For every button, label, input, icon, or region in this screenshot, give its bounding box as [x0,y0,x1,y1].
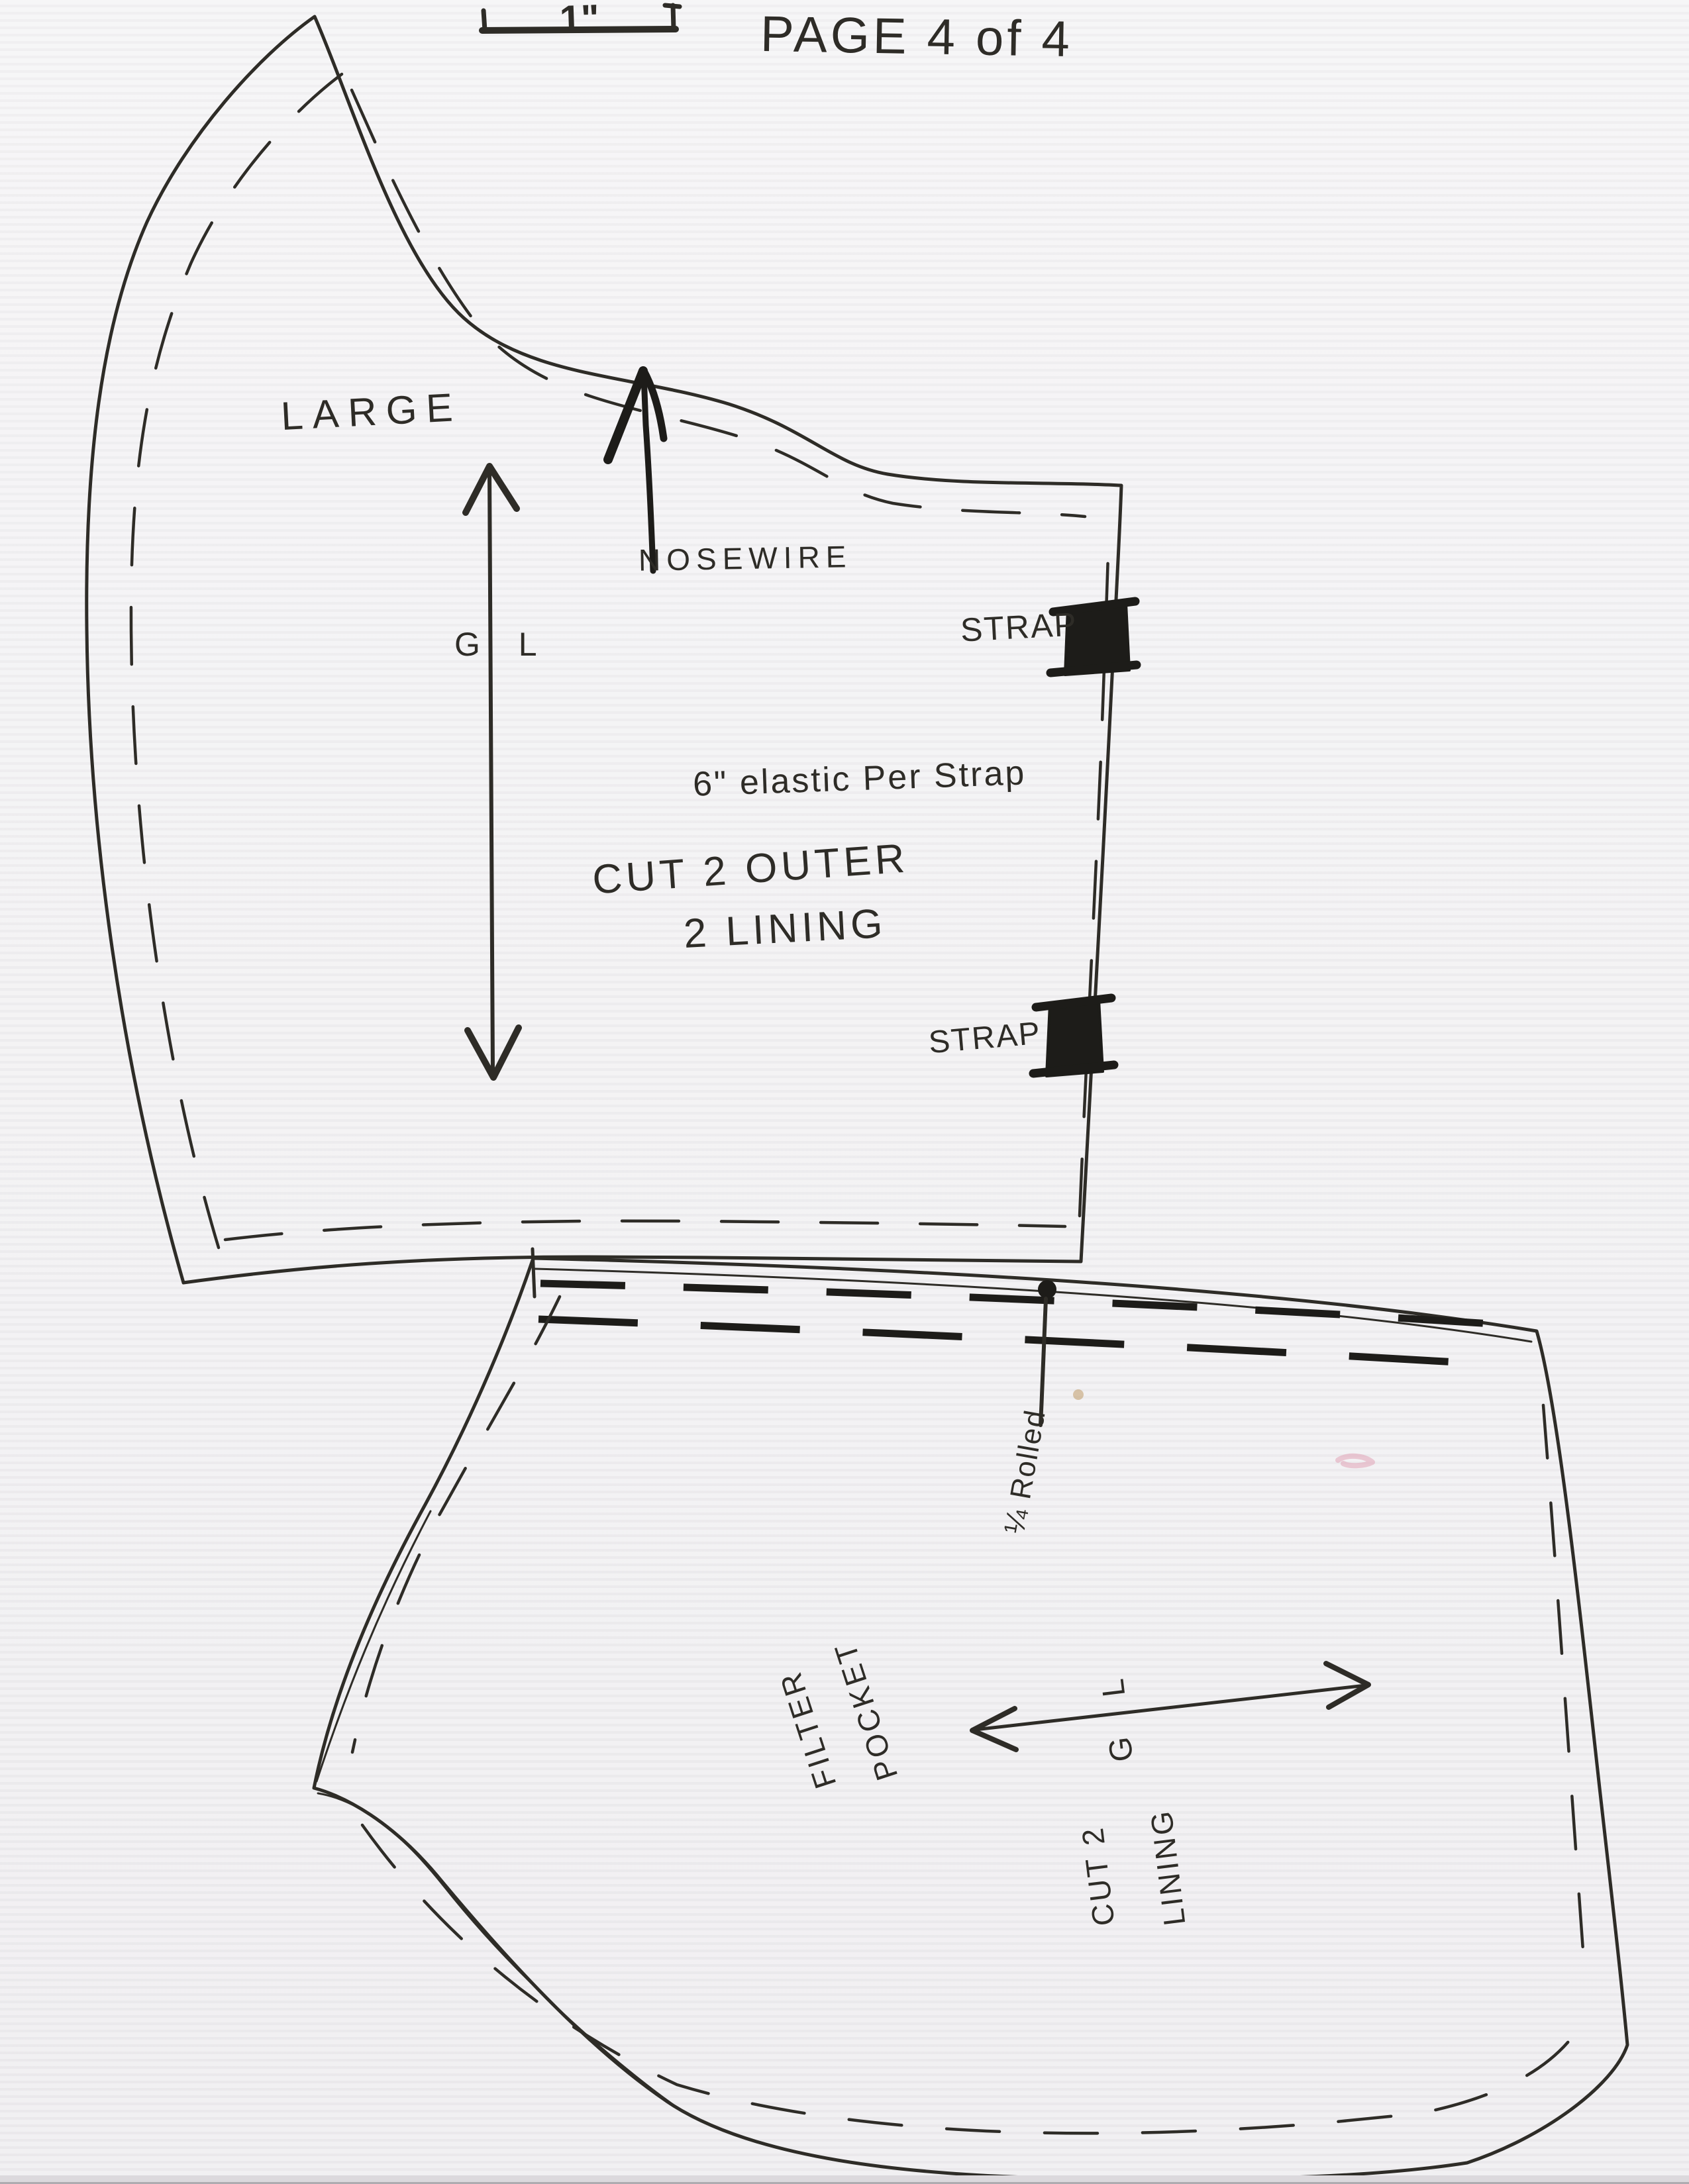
nosewire-arrow [608,371,664,571]
strap-mark-bottom [1033,998,1114,1076]
bottom-piece-edge-double-tip [317,1511,431,1781]
bottom-piece-seam-dashes [352,1297,1590,2133]
hem-stitch-row-2 [538,1319,1510,1365]
grainline-shaft [975,1685,1366,1730]
strap-label-top: STRAP [960,607,1078,646]
scale-bar-label: 1" [559,0,600,39]
tan-speck [1073,1389,1084,1400]
cut-lining-label: CUT 2 LINING [1056,1805,1210,1938]
cut-note-line2: 2 LINING [683,903,888,955]
page-number-label: PAGE 4 of 4 [760,9,1073,65]
nosewire-shaft [644,375,653,571]
pink-smudge [1338,1456,1372,1465]
scanned-pattern-page: 1" PAGE 4 of 4 LARGE NOSEWIRE G L 6" ela… [0,0,1689,2184]
bottom-piece [314,1249,1627,2179]
cut-lining-line2: LINING [1126,1805,1210,1930]
top-piece [87,17,1137,1283]
grainline-shaft [489,472,493,1071]
top-piece-seam-dashes [131,74,1109,1248]
size-label: LARGE [280,387,463,436]
arrowhead-right-icon [1326,1663,1368,1707]
scan-smudges [1073,1389,1372,1465]
nosewire-label: NOSEWIRE [639,541,852,575]
grainline-arrow-bottom [972,1663,1368,1750]
bottom-piece-outline [314,1258,1627,2179]
corner-junction-stub [533,1249,535,1297]
top-piece-outline [87,17,1121,1283]
rolled-hem-dot [1038,1280,1056,1299]
nosewire-barb-left [608,371,643,460]
scale-bar-left-tick [484,11,485,30]
cut-lining-line1: CUT 2 [1056,1813,1141,1938]
grainline-arrow-top [466,466,519,1077]
pattern-drawing [0,0,1689,2184]
grainline-label-top: G L [454,628,552,661]
bottom-piece-edge-double-lower [318,1793,673,2105]
rolled-hem-pointer-line [1041,1299,1046,1425]
scale-bar-right-tick [665,5,680,29]
